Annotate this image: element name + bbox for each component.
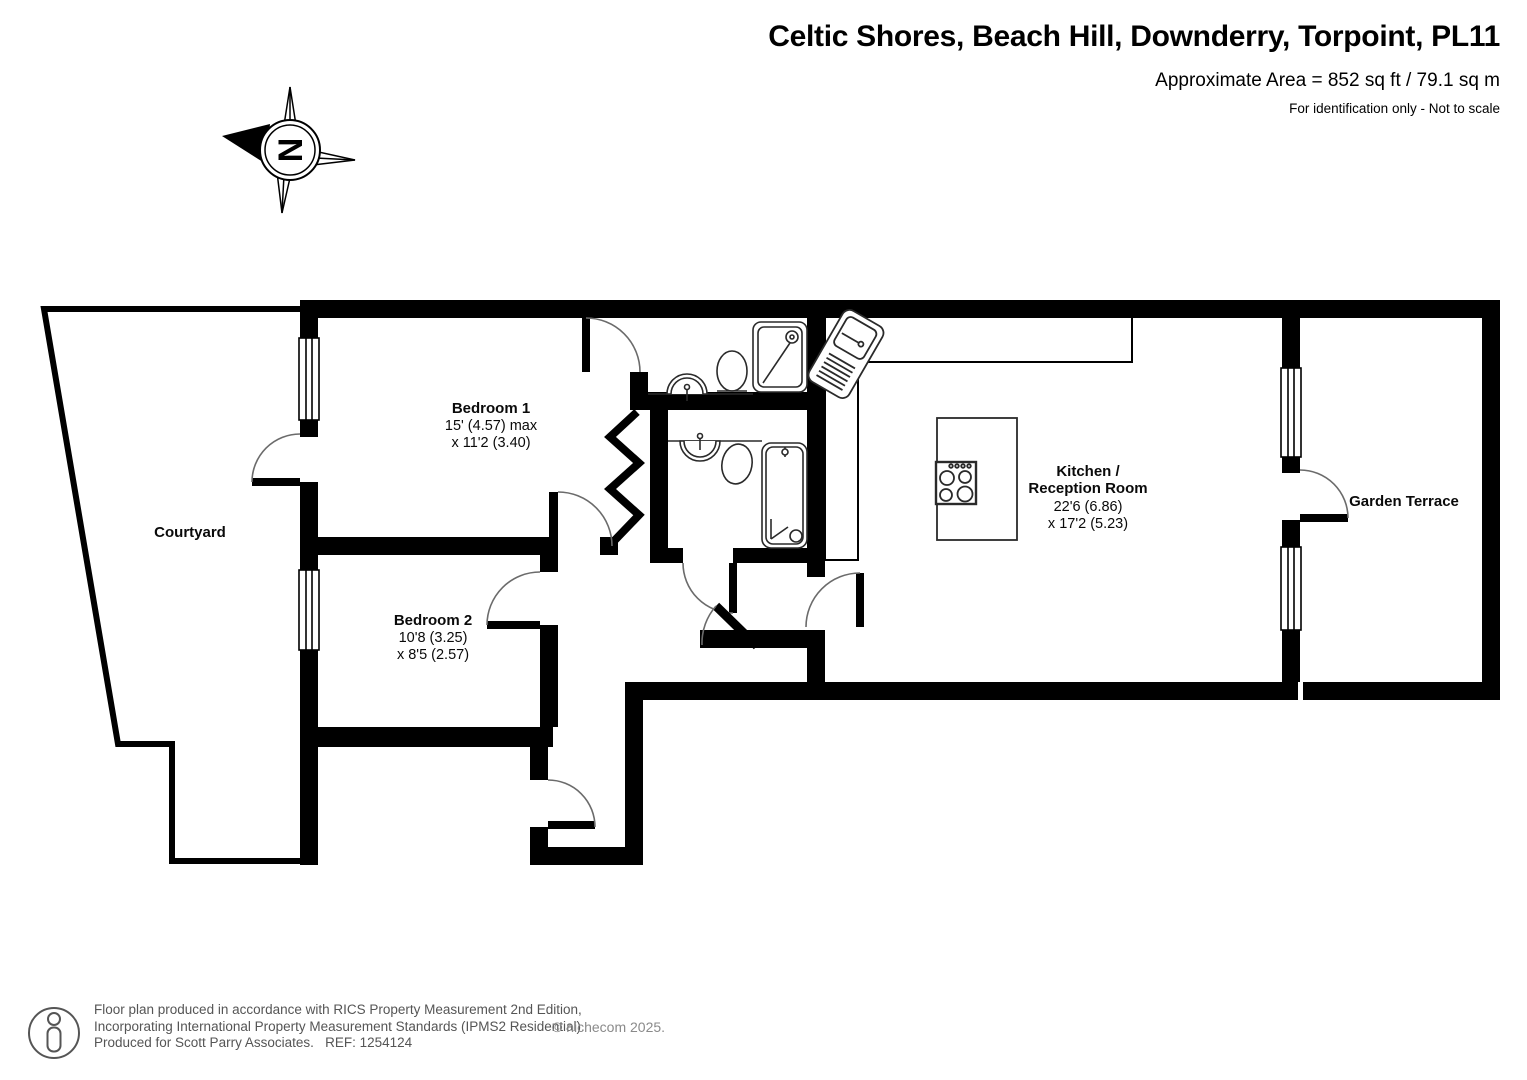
footer-line2: Incorporating International Property Mea… <box>94 1019 585 1036</box>
kitchen-label-line1: Kitchen / <box>1056 463 1120 480</box>
kitchen-window-top <box>1281 368 1301 457</box>
entrance-door <box>548 780 595 829</box>
bathroom-fixtures <box>668 433 807 548</box>
kitchen-label-line2: Reception Room <box>1028 480 1147 497</box>
bedroom2-label: Bedroom 2 <box>394 612 472 629</box>
bedroom2-dim2: x 8'5 (2.57) <box>397 647 469 663</box>
toilet <box>717 351 747 391</box>
compass-north-label: N <box>272 138 310 163</box>
sink <box>680 433 720 461</box>
floorplan-page: Celtic Shores, Beach Hill, Downderry, To… <box>0 0 1527 1080</box>
bedroom2-window <box>299 570 319 650</box>
compass-rose: N <box>222 87 355 213</box>
garden-terrace-door <box>1300 470 1348 522</box>
bedroom2-dim1: 10'8 (3.25) <box>399 630 468 646</box>
bathroom-door <box>683 563 737 613</box>
bedroom2-door <box>487 572 540 629</box>
footer-text: Floor plan produced in accordance with R… <box>94 1002 585 1052</box>
shower-room-fixtures <box>648 322 807 401</box>
footer: Floor plan produced in accordance with R… <box>26 1002 585 1062</box>
kitchen-dim2: x 17'2 (5.23) <box>1048 516 1128 532</box>
courtyard-label: Courtyard <box>154 524 226 541</box>
copyright: © nichecom 2025. <box>552 1019 665 1035</box>
person-icon <box>26 1002 82 1062</box>
kitchen-island <box>936 418 1017 540</box>
bedroom1-dim1: 15' (4.57) max <box>445 418 538 434</box>
garden-terrace-label: Garden Terrace <box>1349 493 1459 510</box>
kitchen-door <box>806 573 864 627</box>
hob <box>936 462 976 504</box>
shower-room-door <box>582 318 640 372</box>
bedroom1-dim2: x 11'2 (3.40) <box>451 435 530 451</box>
zigzag-wardrobe <box>610 412 639 540</box>
footer-line1: Floor plan produced in accordance with R… <box>94 1002 585 1019</box>
courtyard-wall <box>44 309 305 861</box>
walls <box>300 300 1500 865</box>
bath <box>762 443 807 548</box>
shower <box>753 322 807 392</box>
kitchen-window-bottom <box>1281 547 1301 630</box>
bedroom1-window <box>299 338 319 420</box>
floor-plan-canvas: N <box>0 0 1527 1080</box>
footer-line3: Produced for Scott Parry Associates. REF… <box>94 1035 585 1052</box>
kitchen-dim1: 22'6 (6.86) <box>1054 499 1123 515</box>
toilet <box>719 442 755 487</box>
courtyard-door <box>252 434 300 486</box>
bedroom1-label: Bedroom 1 <box>452 400 530 417</box>
